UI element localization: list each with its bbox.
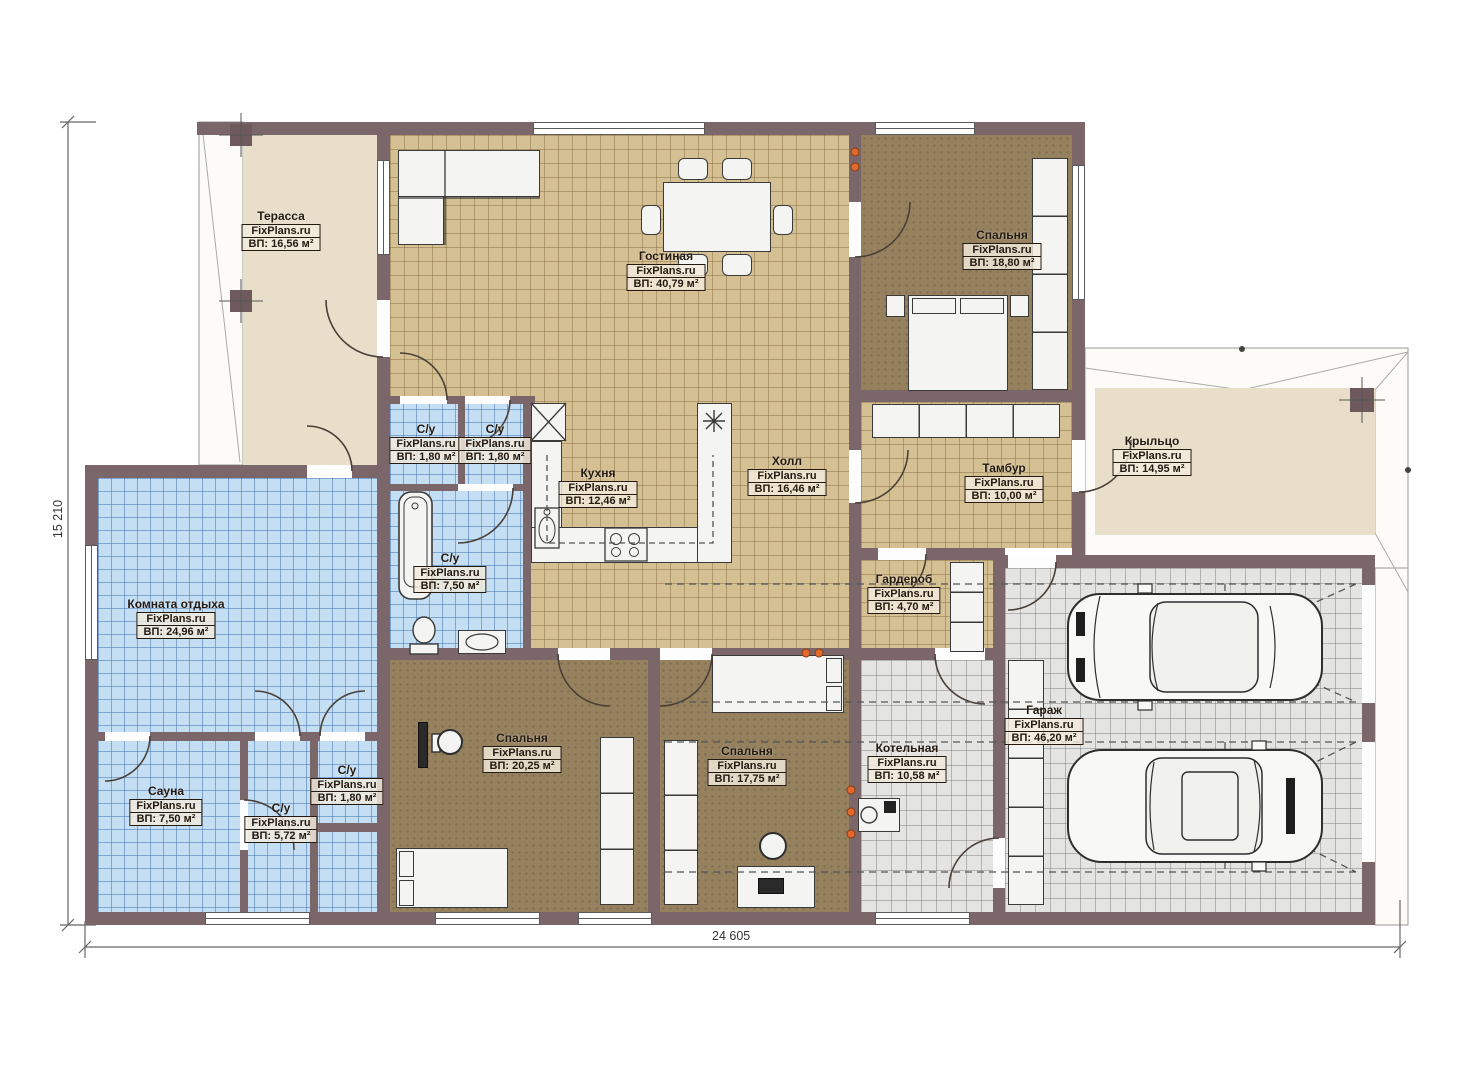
roof-marker-dot [1239, 346, 1245, 352]
door-opening [1008, 555, 1056, 568]
window [377, 160, 390, 255]
door-opening [255, 732, 300, 741]
label-room-hall: Холл FixPlans.ruВП: 16,46 м² [748, 454, 827, 497]
window [205, 912, 310, 925]
bed [712, 655, 844, 713]
wardrobe [664, 740, 698, 905]
door-opening [849, 450, 861, 503]
door-opening [660, 648, 712, 660]
dimension-label-height: 15 210 [51, 489, 65, 549]
wall [85, 465, 98, 925]
door-opening [307, 465, 352, 478]
window [875, 912, 970, 925]
window [1072, 165, 1085, 300]
pillow [912, 298, 956, 314]
chair [678, 158, 708, 180]
chair [722, 254, 752, 276]
window [85, 545, 98, 660]
label-room-boiler: Котельная FixPlans.ruВП: 10,58 м² [868, 741, 947, 784]
label-room-garage: Гараж FixPlans.ruВП: 46,20 м² [1005, 703, 1084, 746]
label-room-bathroom: С/у FixPlans.ruВП: 7,50 м² [413, 551, 486, 594]
pillow [399, 880, 414, 906]
wall [861, 390, 1072, 402]
chair [773, 205, 793, 235]
wall [318, 823, 377, 832]
nightstand [1010, 295, 1029, 317]
dining-table [663, 182, 771, 252]
chair [641, 205, 661, 235]
shelving [950, 562, 984, 652]
wardrobe [600, 737, 634, 905]
door-opening [320, 732, 365, 741]
door-opening [1072, 440, 1085, 492]
shelving [1008, 660, 1044, 905]
door-opening [558, 648, 610, 660]
door-opening [105, 732, 150, 741]
pillow [826, 658, 842, 683]
window [435, 912, 540, 925]
wardrobe [872, 404, 1060, 438]
kitchen-tall-cabinet [531, 403, 566, 441]
floor-lounge-sauna-block [98, 478, 377, 912]
label-room-bedroom-top: Спальня FixPlans.ruВП: 18,80 м² [963, 228, 1042, 271]
door-opening [400, 396, 447, 404]
label-room-wc-1: С/у FixPlans.ruВП: 1,80 м² [389, 422, 462, 465]
door-opening [849, 202, 861, 257]
sofa [398, 150, 540, 197]
door-opening [465, 396, 510, 404]
label-room-bedroom-2: Спальня FixPlans.ruВП: 17,75 м² [708, 744, 787, 787]
label-room-living: Гостиная FixPlans.ruВП: 40,79 м² [627, 249, 706, 292]
pillow [826, 686, 842, 711]
nightstand [886, 295, 905, 317]
pillow [960, 298, 1004, 314]
floor-plan: Терасса FixPlans.ruВП: 16,56 м² Гостиная… [0, 0, 1473, 1080]
chair [722, 158, 752, 180]
label-room-bedroom-1: Спальня FixPlans.ruВП: 20,25 м² [483, 731, 562, 774]
door-opening [458, 484, 513, 491]
desk-unit [758, 878, 784, 894]
door-opening [878, 548, 926, 560]
floor-terrace [243, 135, 377, 465]
label-room-wc-4: С/у FixPlans.ruВП: 1,80 м² [310, 763, 383, 806]
kitchen-counter [697, 403, 732, 563]
window [578, 912, 652, 925]
label-room-sauna: Сауна FixPlans.ruВП: 7,50 м² [129, 784, 202, 827]
label-room-vestibule: Тамбур FixPlans.ruВП: 10,00 м² [965, 461, 1044, 504]
door-opening [377, 300, 390, 357]
roof-marker-dot [1405, 467, 1411, 473]
floor-boiler-room [861, 660, 993, 912]
window [875, 122, 975, 135]
window [533, 122, 705, 135]
door-opening [993, 838, 1005, 888]
bathroom-sink [458, 630, 506, 654]
desk-unit [418, 722, 428, 768]
garage-door-opening [1362, 742, 1375, 862]
garage-door-opening [1362, 585, 1375, 703]
label-room-porch: Крыльцо FixPlans.ruВП: 14,95 м² [1113, 434, 1192, 477]
label-room-wardrobe: Гардероб FixPlans.ruВП: 4,70 м² [867, 572, 940, 615]
pillow [399, 851, 414, 877]
label-room-wc-3: С/у FixPlans.ruВП: 5,72 м² [244, 801, 317, 844]
dimension-label-width: 24 605 [712, 929, 750, 943]
label-room-wc-2: С/у FixPlans.ruВП: 1,80 м² [458, 422, 531, 465]
label-room-kitchen: Кухня FixPlans.ruВП: 12,46 м² [559, 466, 638, 509]
wall [648, 660, 660, 912]
label-room-lounge: Комната отдыха FixPlans.ruВП: 24,96 м² [127, 597, 224, 640]
label-room-terrace: Терасса FixPlans.ruВП: 16,56 м² [242, 209, 321, 252]
wardrobe [1032, 158, 1068, 390]
boiler-unit [858, 798, 900, 832]
